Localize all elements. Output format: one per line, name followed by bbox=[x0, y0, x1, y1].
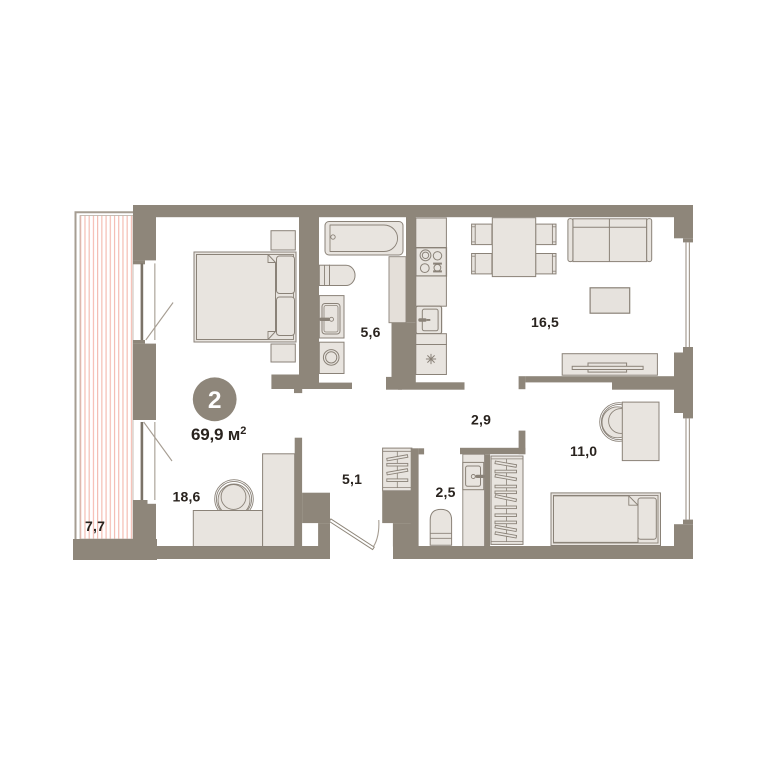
svg-text:11,0: 11,0 bbox=[570, 443, 597, 459]
svg-text:2: 2 bbox=[208, 387, 222, 414]
svg-text:2,9: 2,9 bbox=[471, 412, 491, 428]
svg-text:18,6: 18,6 bbox=[173, 489, 201, 505]
svg-text:69,9 м2: 69,9 м2 bbox=[191, 425, 246, 444]
svg-text:5,6: 5,6 bbox=[361, 324, 381, 340]
svg-text:5,1: 5,1 bbox=[342, 471, 362, 487]
svg-text:7,7: 7,7 bbox=[85, 518, 105, 534]
svg-text:2,5: 2,5 bbox=[436, 484, 456, 500]
svg-text:16,5: 16,5 bbox=[531, 314, 559, 330]
